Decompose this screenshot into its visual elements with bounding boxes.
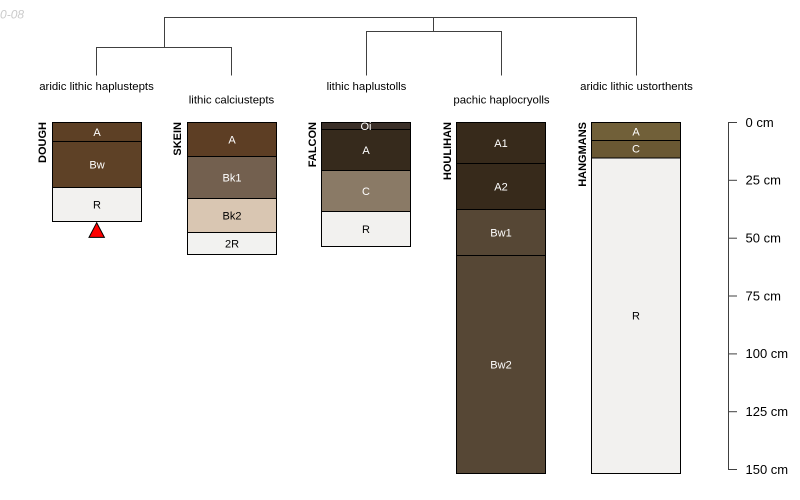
svg-text:2010-08: 2010-08 <box>0 8 24 22</box>
svg-text:A2: A2 <box>494 182 507 194</box>
svg-text:lithic calciustepts: lithic calciustepts <box>189 95 275 107</box>
svg-text:A: A <box>632 127 640 139</box>
svg-text:Oi: Oi <box>361 121 372 133</box>
svg-text:A1: A1 <box>494 138 507 150</box>
svg-text:HOULIHAN: HOULIHAN <box>442 122 454 180</box>
svg-text:lithic haplustolls: lithic haplustolls <box>327 81 407 93</box>
svg-text:2R: 2R <box>225 239 239 251</box>
svg-text:R: R <box>362 224 370 236</box>
svg-text:A: A <box>362 145 370 157</box>
svg-text:75 cm: 75 cm <box>746 288 781 303</box>
svg-text:125 cm: 125 cm <box>746 404 789 419</box>
svg-text:100 cm: 100 cm <box>746 346 789 361</box>
svg-text:HANGMANS: HANGMANS <box>577 122 589 187</box>
svg-text:A: A <box>93 127 101 139</box>
svg-text:50 cm: 50 cm <box>746 231 781 246</box>
svg-text:R: R <box>93 200 101 212</box>
svg-text:pachic haplocryolls: pachic haplocryolls <box>453 95 550 107</box>
svg-text:aridic lithic haplustepts: aridic lithic haplustepts <box>39 81 154 93</box>
svg-text:Bw2: Bw2 <box>490 360 511 372</box>
svg-text:Bk1: Bk1 <box>223 173 242 185</box>
svg-text:Bw: Bw <box>89 160 104 172</box>
svg-text:25 cm: 25 cm <box>746 173 781 188</box>
svg-text:R: R <box>632 310 640 322</box>
svg-text:FALCON: FALCON <box>307 122 319 167</box>
svg-text:aridic lithic ustorthents: aridic lithic ustorthents <box>580 81 693 93</box>
svg-text:150 cm: 150 cm <box>746 462 789 477</box>
svg-text:0 cm: 0 cm <box>746 115 774 130</box>
svg-text:DOUGH: DOUGH <box>37 122 49 163</box>
svg-text:Bk2: Bk2 <box>223 211 242 223</box>
svg-text:SKEIN: SKEIN <box>172 122 184 156</box>
svg-text:C: C <box>632 144 640 156</box>
svg-text:Bw1: Bw1 <box>490 228 511 240</box>
svg-text:A: A <box>228 135 236 147</box>
svg-text:C: C <box>362 186 370 198</box>
